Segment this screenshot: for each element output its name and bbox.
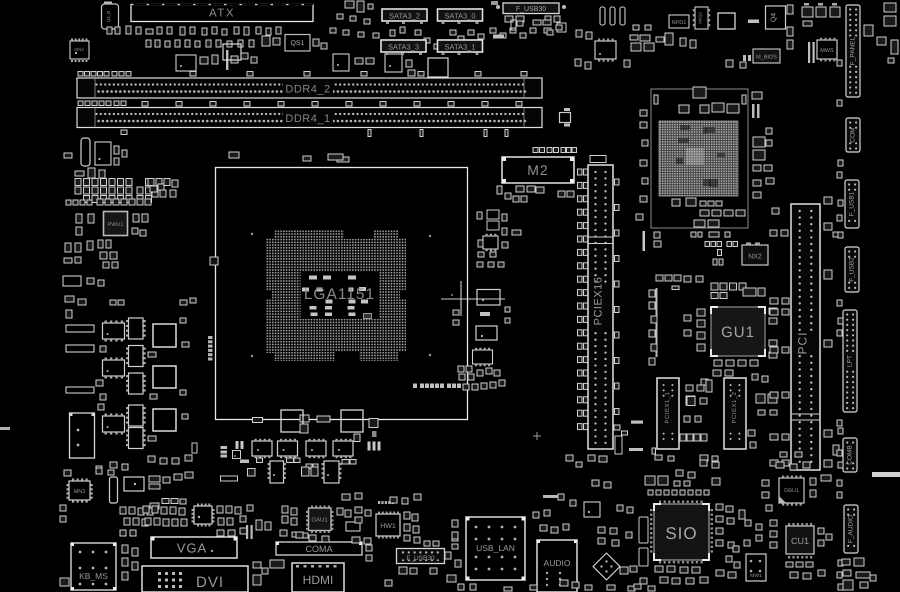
svg-text:DDR4_2: DDR4_2	[285, 84, 330, 96]
svg-text:GAU1: GAU1	[311, 517, 328, 524]
svg-text:Q4_B: Q4_B	[106, 11, 111, 23]
svg-text:PCIEX16: PCIEX16	[593, 277, 605, 326]
svg-text:SATA3_1: SATA3_1	[445, 43, 476, 52]
svg-text:F_USB1: F_USB1	[849, 191, 856, 216]
svg-text:GU1: GU1	[721, 324, 755, 341]
svg-text:SATA3_2: SATA3_2	[389, 12, 420, 21]
svg-text:F_USB30: F_USB30	[516, 6, 546, 13]
svg-text:CU1: CU1	[791, 536, 809, 546]
svg-text:KB_MS: KB_MS	[79, 571, 108, 581]
svg-text:HDMI: HDMI	[303, 573, 334, 587]
svg-text:MWS: MWS	[820, 48, 834, 54]
svg-text:MXQ3: MXQ3	[698, 12, 703, 24]
svg-text:COMB: COMB	[847, 445, 854, 465]
svg-text:LPT: LPT	[847, 355, 854, 367]
svg-text:DDR4_1: DDR4_1	[285, 113, 330, 125]
svg-text:COM: COM	[850, 127, 857, 142]
svg-text:DVI: DVI	[196, 574, 224, 591]
svg-text:MW1: MW1	[750, 573, 762, 579]
svg-text:NX2: NX2	[748, 254, 762, 261]
svg-text:GBU1: GBU1	[784, 488, 799, 494]
svg-text:F_USB30: F_USB30	[406, 555, 435, 562]
svg-text:PCI: PCI	[796, 331, 810, 354]
svg-text:ATX: ATX	[209, 8, 235, 20]
svg-text:F_AUDIO: F_AUDIO	[848, 515, 855, 543]
svg-text:SATA3_3: SATA3_3	[388, 43, 419, 52]
svg-text:COMA: COMA	[306, 544, 333, 554]
svg-text:MN3: MN3	[74, 489, 86, 495]
svg-text:USB_LAN: USB_LAN	[476, 543, 515, 553]
svg-text:QS1: QS1	[290, 40, 304, 47]
svg-text:LGA1151: LGA1151	[304, 286, 375, 303]
svg-text:Q4: Q4	[771, 13, 778, 22]
svg-text:PWU1: PWU1	[108, 222, 124, 228]
svg-text:M_BIOS: M_BIOS	[756, 55, 777, 61]
svg-text:VGA: VGA	[177, 541, 207, 556]
svg-text:MN4: MN4	[74, 47, 84, 52]
svg-text:F_USB2: F_USB2	[849, 257, 856, 282]
svg-text:NPD1: NPD1	[672, 20, 687, 26]
svg-text:SIO: SIO	[665, 524, 697, 543]
svg-text:SATA3_0: SATA3_0	[445, 12, 476, 21]
svg-text:F_PANEL: F_PANEL	[850, 36, 857, 65]
svg-text:PCIEX1_2: PCIEX1_2	[731, 391, 738, 423]
svg-text:M2: M2	[527, 162, 548, 178]
svg-text:HW1: HW1	[380, 523, 396, 530]
svg-text:PCIEX1_1: PCIEX1_1	[664, 391, 671, 423]
svg-text:AUDIO: AUDIO	[544, 558, 571, 568]
